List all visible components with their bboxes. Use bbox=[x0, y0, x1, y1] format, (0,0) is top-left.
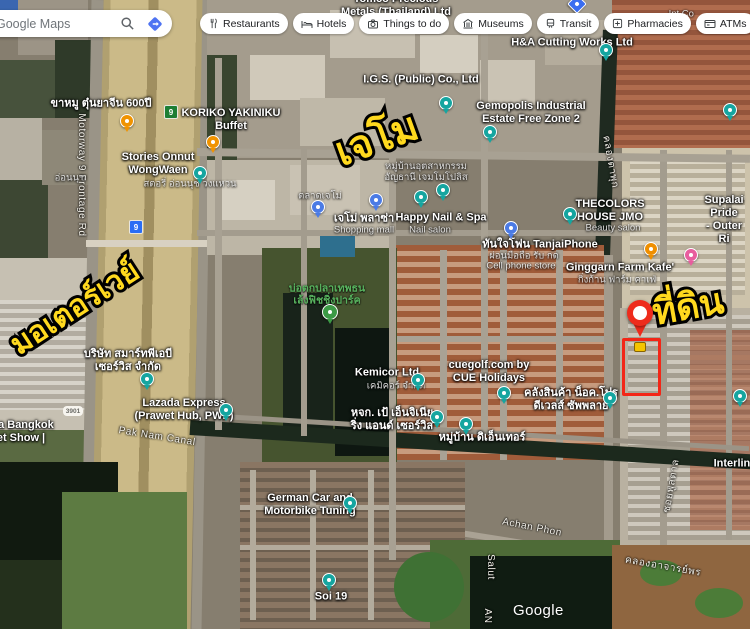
default-pin[interactable] bbox=[483, 125, 497, 139]
thecolors-sub-label: Beauty salon bbox=[586, 222, 641, 233]
achan-phon-label: Achan Phon bbox=[501, 516, 563, 539]
default-pin-icon bbox=[193, 166, 207, 180]
default-pin-icon bbox=[411, 373, 425, 387]
default-pin[interactable] bbox=[322, 573, 336, 587]
shopping-pin[interactable] bbox=[369, 193, 383, 207]
pharmacies-icon bbox=[612, 18, 623, 29]
chip-label: Transit bbox=[560, 18, 592, 30]
default-pin[interactable] bbox=[140, 372, 154, 386]
default-pin[interactable] bbox=[219, 403, 233, 417]
default-pin[interactable] bbox=[414, 190, 428, 204]
chip-things-to-do[interactable]: Things to do bbox=[359, 13, 449, 34]
chip-pharmacies[interactable]: Pharmacies bbox=[604, 13, 690, 34]
chip-museums[interactable]: Museums bbox=[454, 13, 532, 34]
shopping-pin[interactable] bbox=[504, 221, 518, 235]
an-label: AN bbox=[481, 608, 493, 623]
default-pin-icon bbox=[436, 183, 450, 197]
default-pin-icon bbox=[603, 391, 617, 405]
default-pin[interactable] bbox=[430, 410, 444, 424]
chip-label: ATMs bbox=[720, 18, 747, 30]
ha-cutting-label[interactable]: H&A Cutting Works Ltd bbox=[511, 37, 633, 50]
land-marker-dot bbox=[634, 342, 646, 352]
shopping-pin-icon bbox=[504, 221, 518, 235]
kemicor-label[interactable]: Kemicor Ltd bbox=[355, 367, 419, 380]
tanjai-sub2-label: Cell phone store bbox=[486, 260, 555, 271]
search-icon[interactable] bbox=[116, 13, 138, 35]
supalai-label[interactable]: Supalai Pride - Outer Ri bbox=[704, 194, 743, 246]
salut-label: Salut bbox=[484, 554, 496, 580]
default-pin[interactable] bbox=[343, 496, 357, 510]
happy-nail-label[interactable]: Happy Nail & Spa bbox=[395, 212, 486, 225]
hotels-icon bbox=[301, 18, 313, 30]
search-box[interactable]: Google Maps bbox=[0, 10, 172, 37]
pao-eng-label[interactable]: หจก. เป้ เอ็นจิเนีย ริ่ง แอนด์ เซอร์วิส bbox=[351, 407, 433, 433]
restaurants-icon bbox=[208, 18, 219, 29]
search-input[interactable]: Google Maps bbox=[0, 17, 116, 31]
pink-pin-icon bbox=[684, 248, 698, 262]
default-pin-icon bbox=[414, 190, 428, 204]
google-watermark: Google bbox=[513, 602, 564, 619]
location-pin[interactable] bbox=[626, 300, 654, 340]
things-icon bbox=[367, 18, 379, 30]
default-pin[interactable] bbox=[497, 386, 511, 400]
restaurant-pin-icon bbox=[206, 135, 220, 149]
default-pin-icon bbox=[723, 103, 737, 117]
motorway-frontage-label: Motorway 9 Frontage Rd bbox=[75, 113, 87, 236]
default-pin-icon bbox=[497, 386, 511, 400]
german-car-label[interactable]: German Car and Motorbike Tuning bbox=[264, 492, 355, 518]
default-pin-icon bbox=[219, 403, 233, 417]
default-pin[interactable] bbox=[603, 391, 617, 405]
shopping-pin-icon bbox=[369, 193, 383, 207]
default-pin-icon bbox=[430, 410, 444, 424]
chip-label: Museums bbox=[478, 18, 524, 30]
default-pin[interactable] bbox=[436, 183, 450, 197]
anchani-label: หมู่บ้านอุตสาหกรรม อัญธานี เจมโมโปลิส bbox=[384, 161, 467, 183]
default-pin-icon bbox=[439, 96, 453, 110]
location-pin-tail bbox=[633, 323, 647, 344]
chip-restaurants[interactable]: Restaurants bbox=[200, 13, 288, 34]
cuegolf-label[interactable]: cuegolf.com by CUE Holidays bbox=[449, 359, 530, 385]
park-pin-icon bbox=[322, 304, 338, 320]
interline-label[interactable]: Interline bbox=[714, 458, 750, 471]
default-pin[interactable] bbox=[411, 373, 425, 387]
default-pin-icon bbox=[459, 417, 473, 431]
the-enter-label[interactable]: หมู่บ้าน ดิเอ็นเทอร์ bbox=[439, 432, 526, 445]
shopping-pin-icon bbox=[311, 200, 325, 214]
park-pin[interactable] bbox=[322, 304, 338, 320]
bangkok-show-label[interactable]: ma Bangkok et Show | bbox=[0, 419, 54, 445]
cafe-pin[interactable] bbox=[644, 242, 658, 256]
ginggarn-label[interactable]: Ginggarn Farm Kafe' bbox=[566, 262, 674, 275]
gemopolis-label[interactable]: Gemopolis Industrial Estate Free Zone 2 bbox=[476, 100, 585, 126]
happy-nail-sub-label: Nail salon bbox=[409, 224, 451, 235]
restaurant-pin[interactable] bbox=[206, 135, 220, 149]
transit-icon bbox=[545, 18, 556, 29]
smart-pab-label[interactable]: บริษัท สมาร์ทพีเอบี เซอร์วิส จำกัด bbox=[84, 348, 172, 374]
pink-pin[interactable] bbox=[684, 248, 698, 262]
default-pin[interactable] bbox=[459, 417, 473, 431]
route-shield-3901: 3901 bbox=[63, 406, 83, 416]
atms-icon bbox=[704, 18, 716, 30]
shopping-pin[interactable] bbox=[311, 200, 325, 214]
jemo-plaza-sub-label: Shopping mall bbox=[334, 224, 394, 235]
default-pin-icon bbox=[599, 43, 613, 57]
chip-hotels[interactable]: Hotels bbox=[293, 13, 355, 34]
default-pin-icon bbox=[140, 372, 154, 386]
route-shield-9: 9 bbox=[164, 105, 178, 119]
satellite-map[interactable]: Tomco Precious Metals (Thailand) Ltd... … bbox=[0, 0, 750, 629]
chip-atms[interactable]: ATMs bbox=[696, 13, 750, 34]
directions-icon[interactable] bbox=[144, 13, 166, 35]
default-pin-icon bbox=[733, 389, 747, 403]
stories-label[interactable]: Stories Onnut WongWaen bbox=[122, 151, 195, 177]
ginggarn-sub-label: กิ่งก้าน ฟาร์ม คาเฟ่ bbox=[578, 274, 656, 285]
cafe-pin-icon bbox=[644, 242, 658, 256]
default-pin[interactable] bbox=[599, 43, 613, 57]
chip-label: Hotels bbox=[317, 18, 347, 30]
thecolors-label[interactable]: THECOLORS HOUSE JMO bbox=[575, 198, 644, 224]
location-pin-head bbox=[627, 300, 653, 326]
stories-sub-label: สตอรี่ อ่อนนุช วงแหวน bbox=[143, 178, 236, 189]
category-chips: RestaurantsHotelsThings to doMuseumsTran… bbox=[200, 13, 750, 34]
default-pin-icon bbox=[483, 125, 497, 139]
default-pin-icon bbox=[563, 207, 577, 221]
default-pin[interactable] bbox=[733, 389, 747, 403]
route-shield-9: 9 bbox=[129, 220, 143, 234]
koriko-label[interactable]: KORIKO YAKINIKU Buffet bbox=[181, 107, 280, 133]
default-pin-icon bbox=[322, 573, 336, 587]
default-pin[interactable] bbox=[439, 96, 453, 110]
default-pin[interactable] bbox=[723, 103, 737, 117]
default-pin-icon bbox=[343, 496, 357, 510]
khamu-label[interactable]: ขาหมู ตุ๋นยาจีน 600ปี bbox=[51, 98, 152, 111]
default-pin[interactable] bbox=[193, 166, 207, 180]
diamond-pin[interactable] bbox=[570, 0, 584, 11]
chip-label: Things to do bbox=[383, 18, 441, 30]
chip-transit[interactable]: Transit bbox=[537, 13, 600, 34]
chip-label: Pharmacies bbox=[627, 18, 682, 30]
museums-icon bbox=[462, 18, 474, 30]
igs-label[interactable]: I.G.S. (Public) Co., Ltd bbox=[363, 74, 479, 87]
restaurant-pin-icon bbox=[120, 114, 134, 128]
chip-label: Restaurants bbox=[223, 18, 280, 30]
default-pin[interactable] bbox=[563, 207, 577, 221]
restaurant-pin[interactable] bbox=[120, 114, 134, 128]
